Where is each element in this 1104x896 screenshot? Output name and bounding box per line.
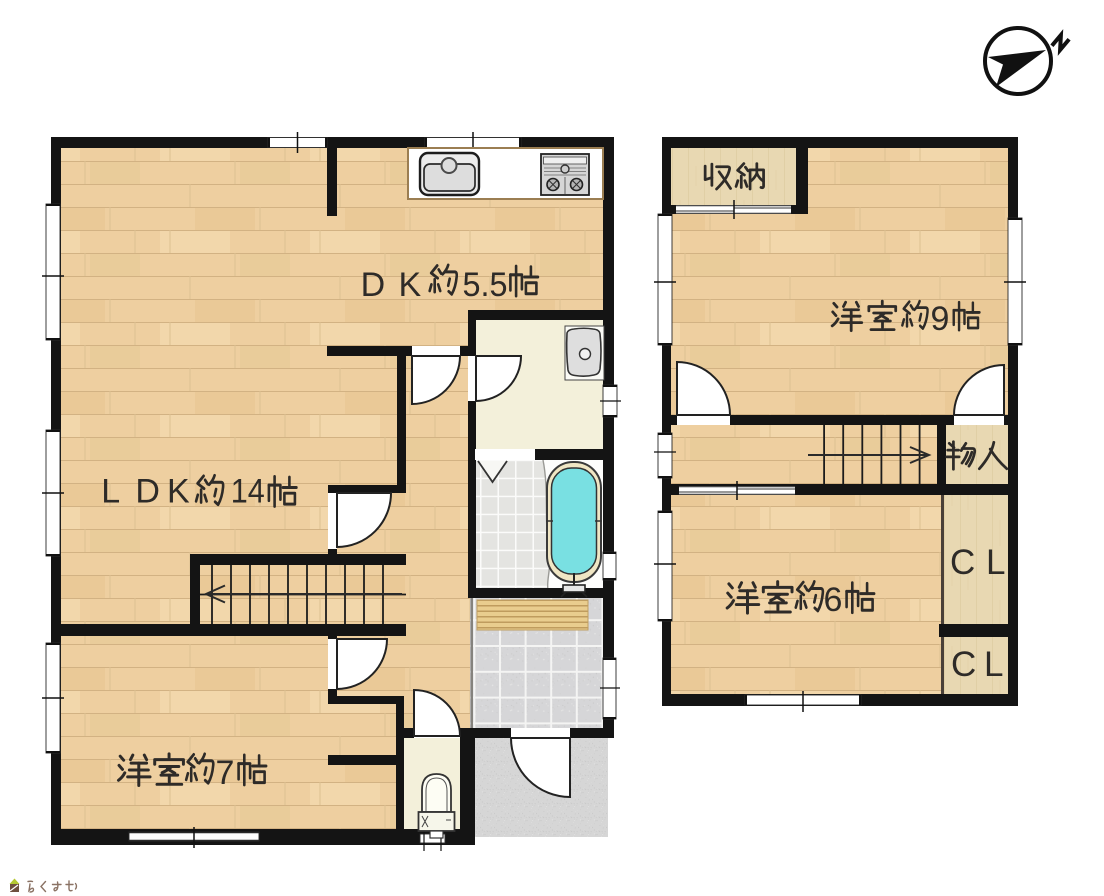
svg-text:L: L [986, 543, 1005, 582]
svg-text:9: 9 [930, 300, 949, 338]
svg-text:6: 6 [824, 581, 843, 619]
svg-text:5.5: 5.5 [463, 266, 508, 304]
svg-text:D: D [361, 266, 386, 304]
svg-text:14: 14 [231, 473, 265, 511]
svg-text:L: L [101, 473, 120, 511]
svg-text:K: K [167, 473, 190, 511]
svg-text:7: 7 [216, 754, 235, 792]
svg-text:D: D [135, 473, 160, 511]
svg-text:C: C [951, 645, 976, 684]
svg-text:K: K [398, 266, 421, 304]
svg-text:C: C [950, 543, 975, 582]
svg-text:L: L [984, 645, 1003, 684]
